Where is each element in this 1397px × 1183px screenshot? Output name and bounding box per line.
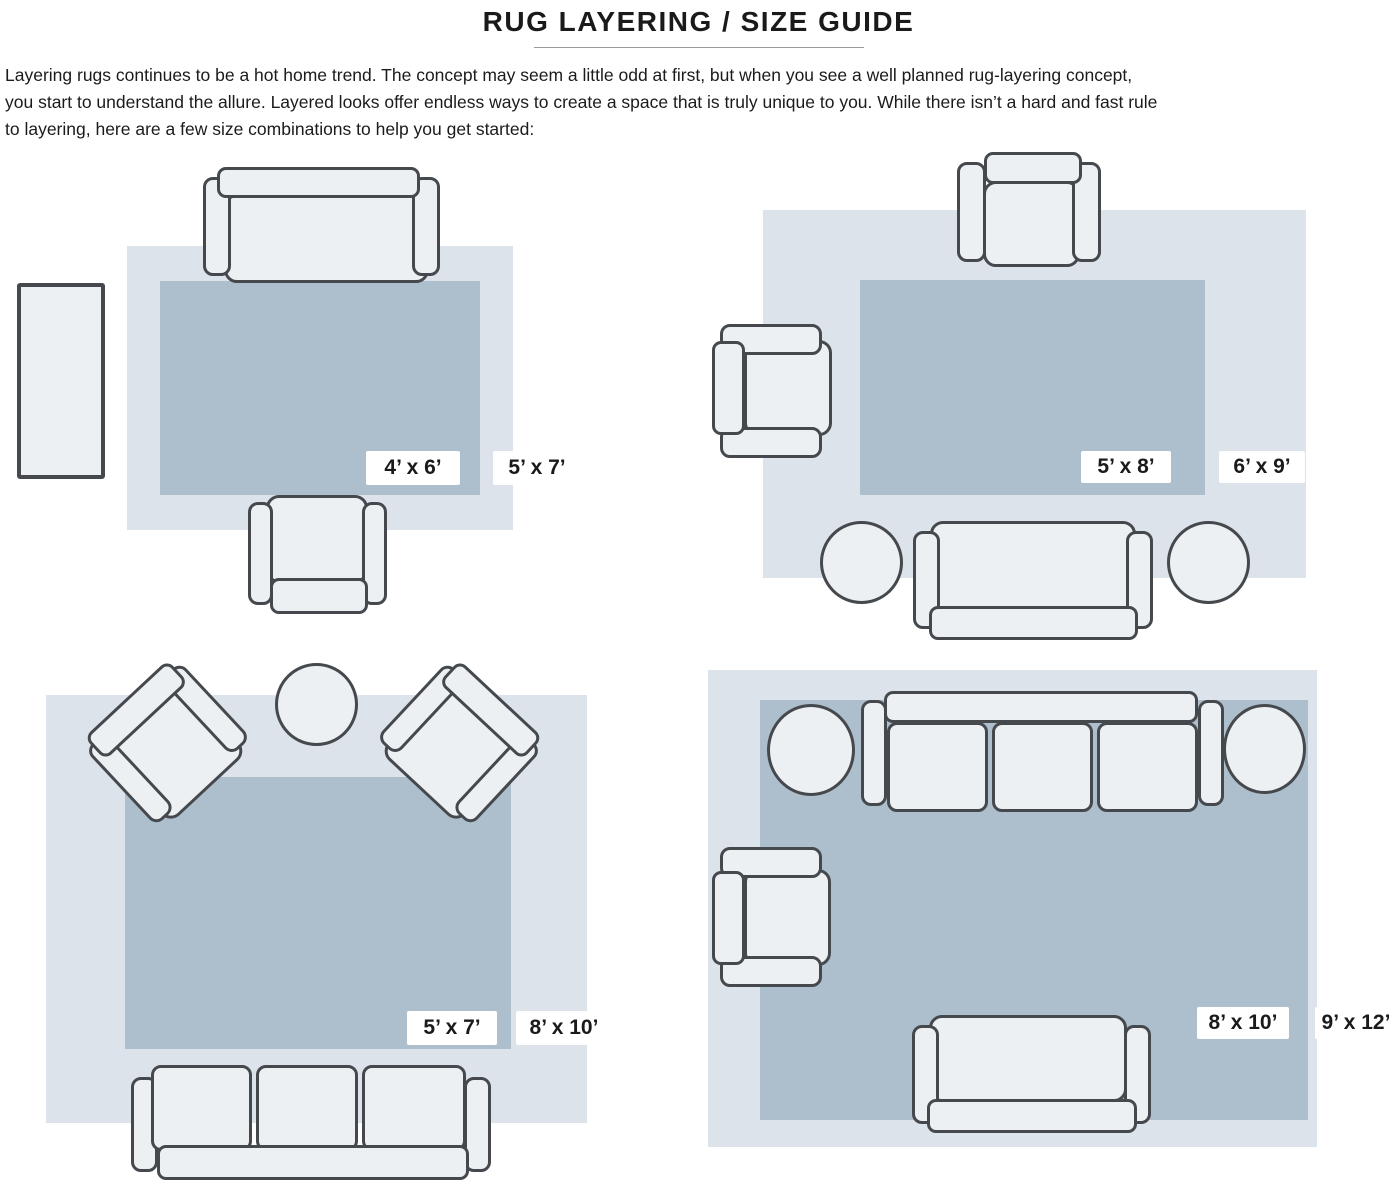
sofa-arm-right xyxy=(1198,700,1224,806)
loveseat-seat xyxy=(929,1015,1127,1102)
sofa-cushion-3 xyxy=(1097,722,1198,812)
rug-size-label-inner: 5’ x 8’ xyxy=(1081,451,1171,483)
armchair-top-seat xyxy=(983,181,1080,267)
sofa-cushion-2 xyxy=(256,1065,358,1151)
rug-size-label-outer: 8’ x 10’ xyxy=(516,1011,612,1045)
diagram-4: 8’ x 10’ 9’ x 12’ xyxy=(690,630,1397,1183)
intro-line-3: to layering, here are a few size combina… xyxy=(5,116,1393,143)
armchair-seat xyxy=(266,495,368,583)
round-side-table xyxy=(275,663,358,746)
armchair-back xyxy=(270,578,368,614)
intro-paragraph: Layering rugs continues to be a hot home… xyxy=(5,62,1393,143)
rug-size-label-outer: 9’ x 12’ xyxy=(1315,1007,1397,1039)
sofa-back xyxy=(157,1145,469,1180)
runner-rug xyxy=(17,283,105,479)
rug-size-label-inner: 4’ x 6’ xyxy=(366,451,460,485)
armchair-left-seat xyxy=(744,869,831,966)
armchair-top-back xyxy=(984,152,1082,184)
intro-line-2: you start to understand the allure. Laye… xyxy=(5,89,1393,116)
round-pouf-left xyxy=(767,704,855,796)
sofa-seat xyxy=(224,194,429,283)
sofa-seat xyxy=(930,521,1136,610)
diagram-2: 5’ x 8’ 6’ x 9’ xyxy=(700,150,1397,650)
sofa-back xyxy=(217,167,420,198)
rug-size-guide: RUG LAYERING / SIZE GUIDE Layering rugs … xyxy=(0,0,1397,1183)
sofa-back xyxy=(884,691,1198,723)
header: RUG LAYERING / SIZE GUIDE xyxy=(0,0,1397,48)
diagram-1: 4’ x 6’ 5’ x 7’ xyxy=(0,150,640,650)
rug-size-label-outer: 5’ x 7’ xyxy=(493,451,581,485)
sofa-cushion-1 xyxy=(887,722,988,812)
page-title: RUG LAYERING / SIZE GUIDE xyxy=(0,6,1397,38)
rug-size-label-inner: 5’ x 7’ xyxy=(407,1011,497,1045)
sofa-arm-left xyxy=(861,700,887,806)
intro-line-1: Layering rugs continues to be a hot home… xyxy=(5,62,1393,89)
round-pouf-right xyxy=(1223,704,1306,794)
rug-size-label-inner: 8’ x 10’ xyxy=(1197,1007,1289,1039)
sofa-cushion-2 xyxy=(992,722,1093,812)
rug-size-label-outer: 6’ x 9’ xyxy=(1219,451,1305,483)
title-underline xyxy=(534,47,864,48)
diagram-3: 5’ x 7’ 8’ x 10’ xyxy=(0,630,660,1183)
loveseat-back xyxy=(927,1099,1137,1133)
sofa-cushion-3 xyxy=(362,1065,466,1151)
round-pouf-right xyxy=(1167,521,1250,604)
armchair-top-arm-left xyxy=(957,162,986,262)
armchair-left-back xyxy=(712,871,745,965)
sofa-cushion-1 xyxy=(151,1065,252,1151)
armchair-left-back xyxy=(712,341,745,435)
round-pouf-left xyxy=(820,521,903,604)
